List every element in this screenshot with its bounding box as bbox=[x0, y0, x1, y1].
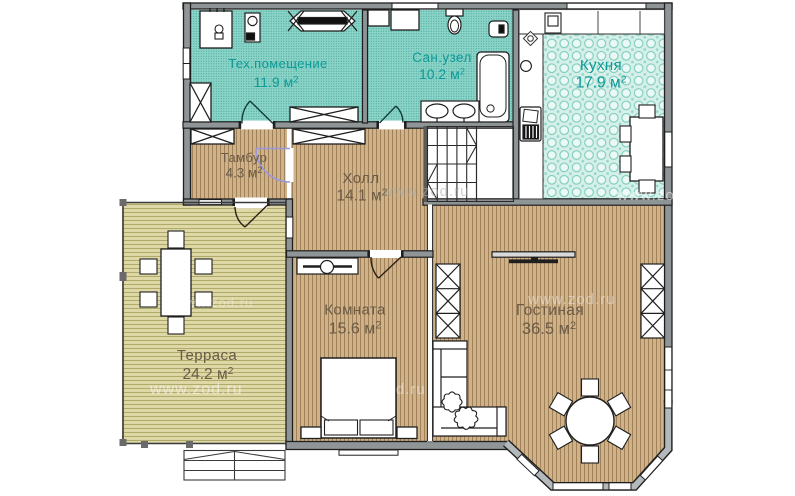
svg-text:17.9 м2: 17.9 м2 bbox=[576, 74, 627, 92]
svg-text:Комната: Комната bbox=[324, 302, 386, 319]
svg-text:10.2 м2: 10.2 м2 bbox=[419, 66, 465, 82]
svg-text:4.3 м2: 4.3 м2 bbox=[225, 165, 262, 181]
svg-text:www.zod.ru: www.zod.ru bbox=[381, 183, 470, 200]
svg-text:Сан.узел: Сан.узел bbox=[412, 50, 472, 65]
svg-text:36.5 м2: 36.5 м2 bbox=[522, 320, 576, 338]
svg-text:Гостиная: Гостиная bbox=[516, 302, 584, 319]
svg-text:Тех.помещение: Тех.помещение bbox=[228, 56, 327, 71]
svg-text:www.zod.ru: www.zod.ru bbox=[175, 295, 253, 310]
svg-text:Кухня: Кухня bbox=[580, 57, 622, 74]
svg-text:11.9 м2: 11.9 м2 bbox=[253, 74, 298, 90]
svg-text:Терраса: Терраса bbox=[177, 347, 238, 364]
svg-text:www.zod.ru: www.zod.ru bbox=[149, 381, 243, 398]
svg-text:14.1 м2: 14.1 м2 bbox=[337, 187, 388, 205]
svg-text:zod.ru: zod.ru bbox=[378, 381, 426, 398]
svg-text:24.2 м2: 24.2 м2 bbox=[183, 365, 234, 383]
svg-text:15.6 м2: 15.6 м2 bbox=[329, 320, 382, 338]
svg-text:Тамбур: Тамбур bbox=[221, 150, 268, 165]
svg-text:www.zod.ru: www.zod.ru bbox=[616, 187, 705, 204]
svg-text:Холл: Холл bbox=[343, 170, 380, 187]
